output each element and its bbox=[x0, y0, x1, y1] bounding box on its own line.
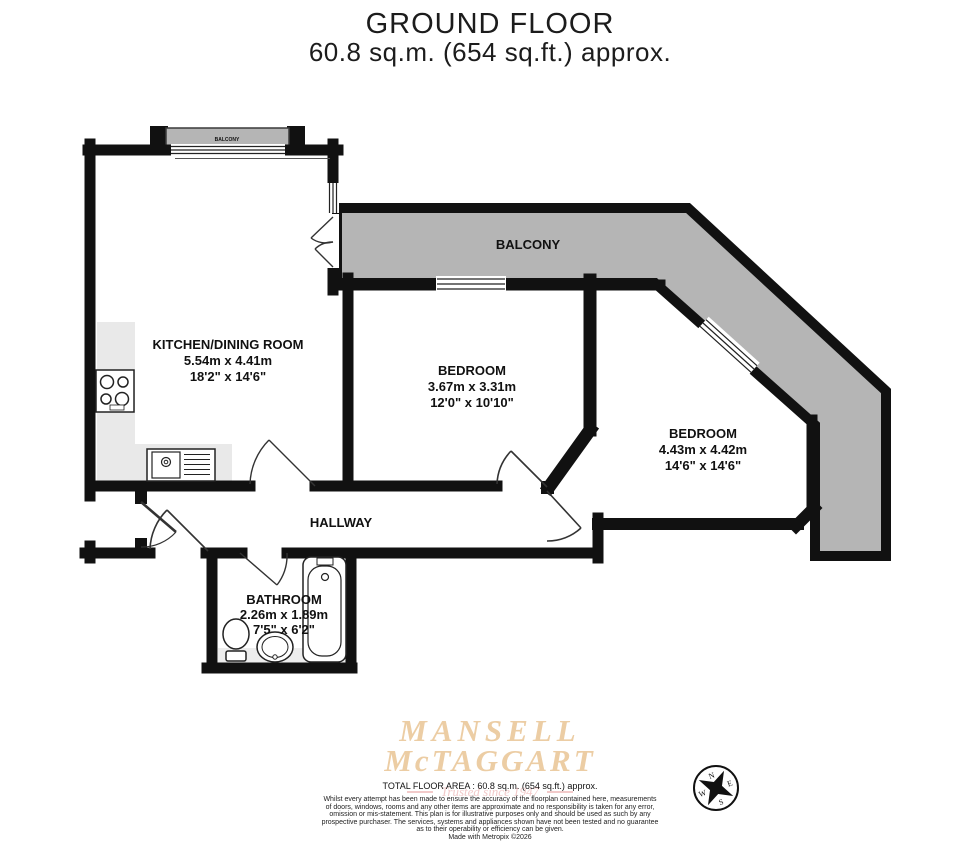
bathroom-metric: 2.26m x 1.89m bbox=[240, 607, 328, 622]
disclaimer: Whilst every attempt has been made to en… bbox=[0, 796, 980, 841]
bedroom2-door bbox=[547, 491, 581, 541]
hallway-label: HALLWAY bbox=[310, 515, 373, 530]
agency-logo: MANSELL McTAGGART bbox=[0, 716, 980, 776]
kitchen-balcony-door-opening bbox=[327, 214, 339, 268]
bedroom2-imperial: 14'6" x 14'6" bbox=[665, 458, 741, 473]
bedroom1-label: BEDROOM bbox=[438, 363, 506, 378]
tagline-dash-right bbox=[547, 791, 573, 793]
floorplan-page: GROUND FLOOR 60.8 sq.m. (654 sq.ft.) app… bbox=[0, 0, 980, 841]
disclaimer-line: omission or mis-statement. This plan is … bbox=[0, 811, 980, 819]
kitchen-imperial: 18'2" x 14'6" bbox=[190, 369, 266, 384]
toilet bbox=[223, 619, 249, 661]
agency-logo-line2: McTAGGART bbox=[0, 746, 980, 776]
bathroom-imperial: 7'5" x 6'2" bbox=[253, 622, 315, 637]
bedroom2-label: BEDROOM bbox=[669, 426, 737, 441]
bedroom1-metric: 3.67m x 3.31m bbox=[428, 379, 516, 394]
kitchen-side-window bbox=[327, 183, 339, 213]
tagline-dash-left bbox=[407, 791, 433, 793]
kitchen-sink bbox=[147, 449, 215, 481]
total-floor-area: TOTAL FLOOR AREA : 60.8 sq.m. (654 sq.ft… bbox=[0, 781, 980, 791]
metropix-credit: Made with Metropix ©2026 bbox=[0, 834, 980, 841]
kitchen-metric: 5.54m x 4.41m bbox=[184, 353, 272, 368]
kitchen-hallway-door bbox=[250, 440, 315, 486]
room-labels: KITCHEN/DINING ROOM 5.54m x 4.41m 18'2" … bbox=[153, 237, 748, 637]
cooktop bbox=[96, 370, 134, 412]
bedroom1-window bbox=[436, 276, 506, 292]
balcony-label: BALCONY bbox=[496, 237, 561, 252]
bedroom1-imperial: 12'0" x 10'10" bbox=[430, 395, 514, 410]
disclaimer-line: of doors, windows, rooms and any other i… bbox=[0, 804, 980, 812]
bedroom1-door bbox=[497, 451, 547, 487]
kitchen-label: KITCHEN/DINING ROOM bbox=[153, 337, 304, 352]
agency-logo-line1: MANSELL bbox=[0, 716, 980, 746]
bedroom2-metric: 4.43m x 4.42m bbox=[659, 442, 747, 457]
disclaimer-line: as to their operability or efficiency ca… bbox=[0, 826, 980, 834]
balcony-area bbox=[337, 208, 886, 556]
disclaimer-line: prospective purchaser. The services, sys… bbox=[0, 819, 980, 827]
disclaimer-line: Whilst every attempt has been made to en… bbox=[0, 796, 980, 804]
bathroom-label: BATHROOM bbox=[246, 592, 322, 607]
juliet-balcony-label: BALCONY bbox=[215, 137, 240, 143]
